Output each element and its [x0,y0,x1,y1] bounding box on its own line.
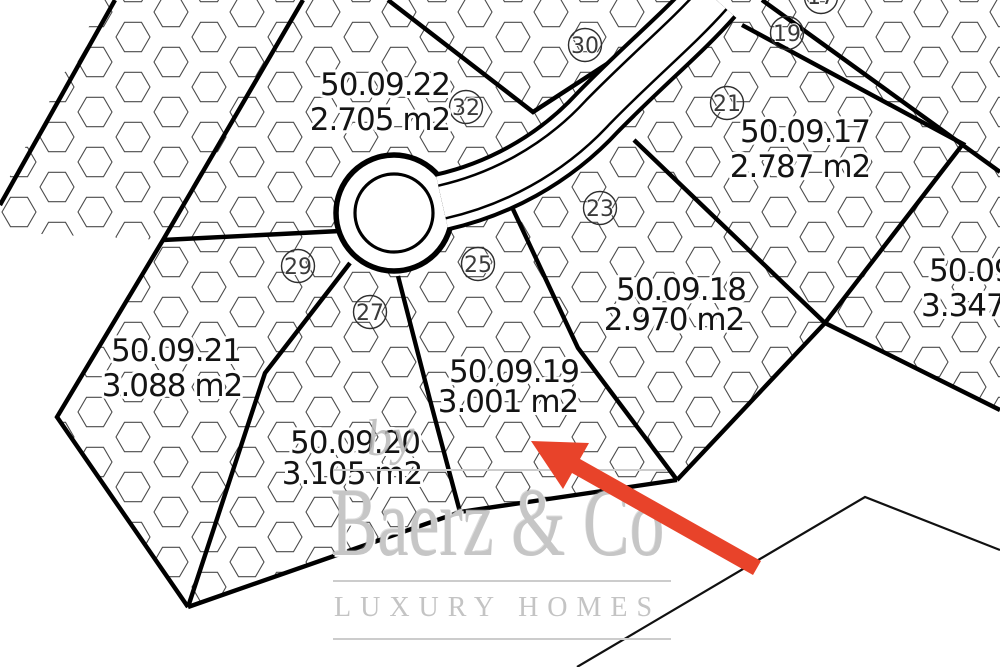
watermark-tagline: LUXURY HOMES [334,592,679,624]
marker-19-label: 19 [773,22,801,47]
plot-50-09-17: 50.09.17 2.787 m2 [730,114,871,185]
plot-area: 3.088 m2 [102,368,243,404]
plot-area: 3.347 [921,288,1000,324]
marker-21-label: 21 [713,92,741,117]
marker-21: 21 [711,87,744,120]
plot-area: 2.705 m2 [310,102,451,138]
marker-30: 30 [569,29,602,62]
marker-17-label: 17 [807,0,835,10]
plot-area: 3.001 m2 [438,384,579,420]
marker-19: 19 [771,17,804,50]
marker-25: 25 [462,248,495,281]
marker-29-label: 29 [284,255,312,280]
watermark-by: by [364,406,417,468]
plot-area: 2.787 m2 [730,149,871,185]
marker-29: 29 [282,250,315,283]
marker-23-label: 23 [586,197,614,222]
plot-50-09-22: 50.09.22 2.705 m2 [310,67,451,138]
plot-number: 50.09 [929,253,1000,289]
plot-area: 2.970 m2 [604,302,745,338]
plot-number: 50.09.21 [111,333,241,369]
watermark-rule-bottom [333,638,671,640]
plot-number: 50.09.17 [740,114,870,150]
plot-50-09-18: 50.09.18 2.970 m2 [604,272,746,338]
road-bulb-inner [355,174,433,252]
marker-27: 27 [354,296,387,329]
plot-number: 50.09.22 [320,67,450,103]
watermark-brand: Baerz & Co [331,478,677,568]
marker-27-label: 27 [356,301,384,326]
marker-25-label: 25 [464,253,492,278]
watermark-rule-middle [333,580,671,582]
plot-50-09-21: 50.09.21 3.088 m2 [102,333,243,404]
marker-32-label: 32 [452,96,480,121]
plot-50-09-16-clipped: 50.09 3.347 [921,253,1000,324]
marker-30-label: 30 [571,34,599,59]
plot-50-09-19: 50.09.19 3.001 m2 [438,354,579,420]
marker-32: 32 [450,91,483,124]
site-plan-map: 17 19 21 23 25 27 [0,0,1000,667]
marker-23: 23 [584,192,617,225]
